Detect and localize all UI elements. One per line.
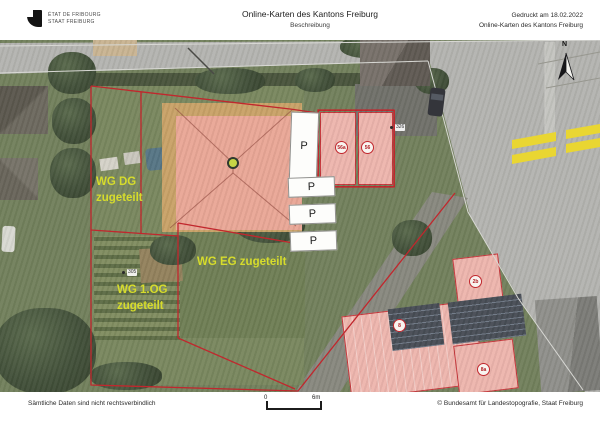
- tree-canopy: [90, 362, 162, 390]
- parcel-number: 326: [396, 124, 404, 130]
- assignment-label-wg-dg: WG DG zugeteilt: [96, 174, 143, 206]
- label-line: zugeteilt: [96, 190, 143, 206]
- assignment-label-wg-eg: WG EG zugeteilt: [197, 254, 286, 270]
- parking-label: P: [300, 140, 308, 152]
- label-line: WG DG: [96, 174, 143, 190]
- building-number-badge: 8a: [477, 363, 490, 376]
- label-line: zugeteilt: [117, 298, 167, 314]
- building-number: 8a: [481, 367, 487, 373]
- tree-canopy: [150, 235, 196, 265]
- parking-box: P: [290, 230, 338, 252]
- building-number: 56: [365, 145, 371, 151]
- assignment-label-wg-og: WG 1.OG zugeteilt: [117, 282, 167, 314]
- parking-box: P: [289, 203, 337, 225]
- parking-box: P: [289, 112, 319, 181]
- page-header: ÉTAT DE FRIBOURG STAAT FREIBURG Online-K…: [0, 0, 600, 40]
- print-page: ÉTAT DE FRIBOURG STAAT FREIBURG Online-K…: [0, 0, 600, 424]
- page-footer: Sämtliche Daten sind nicht rechtsverbind…: [0, 392, 600, 424]
- tree-canopy: [0, 308, 96, 392]
- tree-canopy: [392, 220, 432, 256]
- tree-canopy: [195, 68, 265, 94]
- parcel-number-dot: [122, 271, 125, 274]
- building-number: 56a: [337, 145, 345, 151]
- building-number: 8: [398, 323, 401, 329]
- label-line: WG EG zugeteilt: [197, 254, 286, 270]
- printed-date: Gedruckt am 18.02.2022: [479, 11, 583, 21]
- label-line: WG 1.OG: [117, 282, 167, 298]
- building-top-right: [360, 40, 430, 86]
- tree-canopy: [48, 52, 96, 94]
- disclaimer-text: Sämtliche Daten sind nicht rechtsverbind…: [28, 400, 156, 407]
- building-number-badge: 8: [393, 319, 406, 332]
- source-name: Online-Karten des Kantons Freiburg: [479, 21, 583, 31]
- garden-shed: [99, 157, 118, 171]
- building-top-left: [93, 40, 137, 56]
- building-number: 2b: [473, 279, 479, 285]
- building-number-badge: 56a: [335, 141, 348, 154]
- print-info: Gedruckt am 18.02.2022 Online-Karten des…: [479, 11, 583, 31]
- solar-panels: [448, 294, 527, 345]
- scale-bar: [266, 400, 322, 410]
- parking-box: P: [288, 176, 336, 198]
- building-number-badge: 56: [361, 141, 374, 154]
- tree-canopy: [295, 68, 335, 92]
- parking-label: P: [309, 208, 317, 220]
- neighbor-roof: [0, 158, 38, 200]
- tree-canopy: [50, 148, 96, 198]
- main-house-assignment-overlay: [176, 116, 302, 230]
- parcel-number: 305: [128, 269, 136, 275]
- copyright-text: © Bundesamt für Landestopografie, Staat …: [437, 400, 583, 407]
- parcel-number-label: 305: [127, 269, 137, 276]
- parcel-number-dot: [390, 126, 393, 129]
- tree-canopy: [52, 98, 96, 144]
- building-number-badge: 2b: [469, 275, 482, 288]
- sidewalk-strip: [545, 42, 555, 138]
- parcel-number-label: 326: [395, 124, 405, 131]
- roof-center-marker: [227, 157, 239, 169]
- parking-label: P: [308, 181, 316, 193]
- garden-shed: [123, 151, 141, 165]
- neighbor-roof: [0, 86, 48, 134]
- parcel-lawn-eg: [180, 226, 305, 338]
- map-canvas: P P P P 56a 56 2b 8 8a WG DG zugeteilt W…: [0, 40, 600, 392]
- parking-label: P: [310, 235, 318, 247]
- building-gray-corner: [535, 296, 600, 392]
- north-label: N: [562, 41, 567, 48]
- parked-car: [1, 226, 15, 253]
